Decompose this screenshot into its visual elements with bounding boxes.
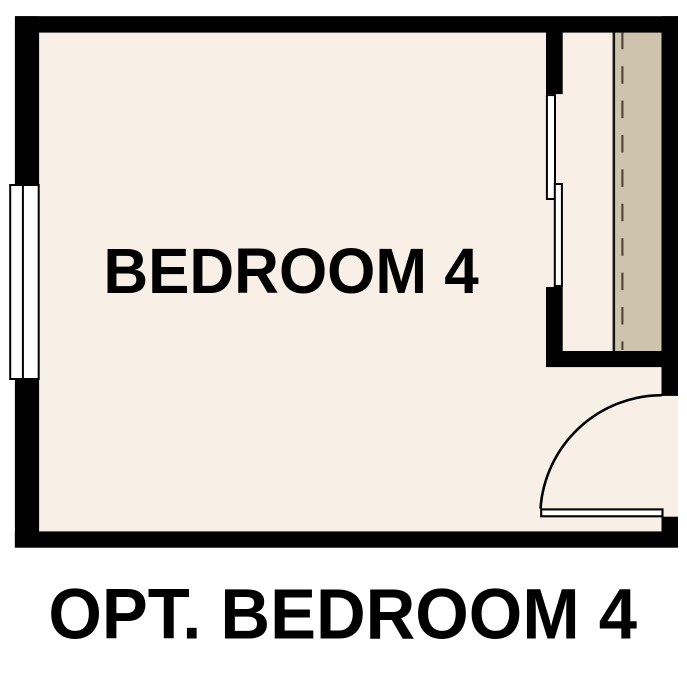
svg-text:OPT. BEDROOM 4: OPT. BEDROOM 4 xyxy=(48,573,637,654)
svg-text:BEDROOM 4: BEDROOM 4 xyxy=(103,236,478,307)
